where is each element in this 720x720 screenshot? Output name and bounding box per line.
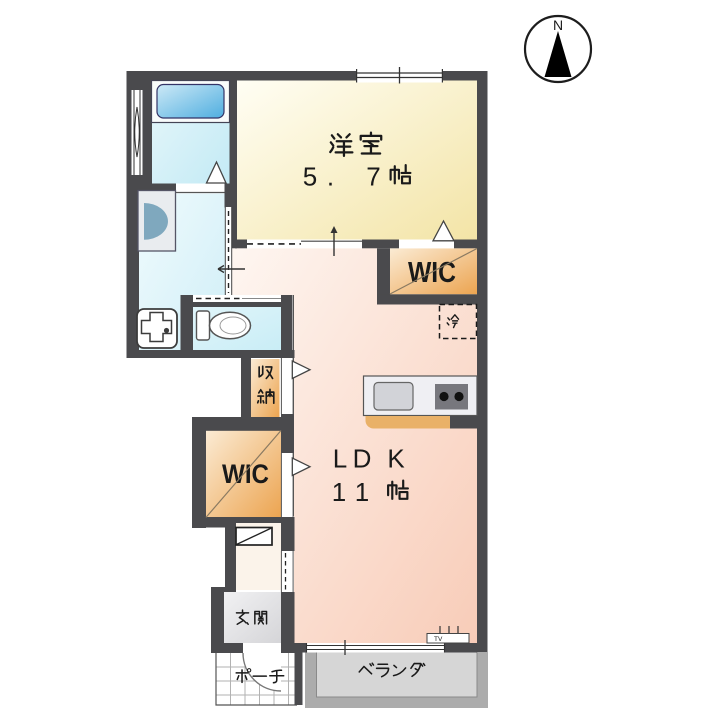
svg-text:N: N xyxy=(553,17,563,33)
svg-text:K: K xyxy=(387,444,405,474)
svg-text:.: . xyxy=(327,162,334,192)
svg-text:7: 7 xyxy=(366,162,380,192)
svg-text:WIC: WIC xyxy=(222,459,269,489)
svg-text:1: 1 xyxy=(355,477,369,507)
svg-text:TV: TV xyxy=(434,636,443,643)
svg-text:5: 5 xyxy=(303,162,317,192)
svg-text:D: D xyxy=(353,444,372,474)
svg-text:1: 1 xyxy=(332,477,346,507)
svg-text:L: L xyxy=(333,444,347,474)
svg-text:WIC: WIC xyxy=(408,257,456,289)
